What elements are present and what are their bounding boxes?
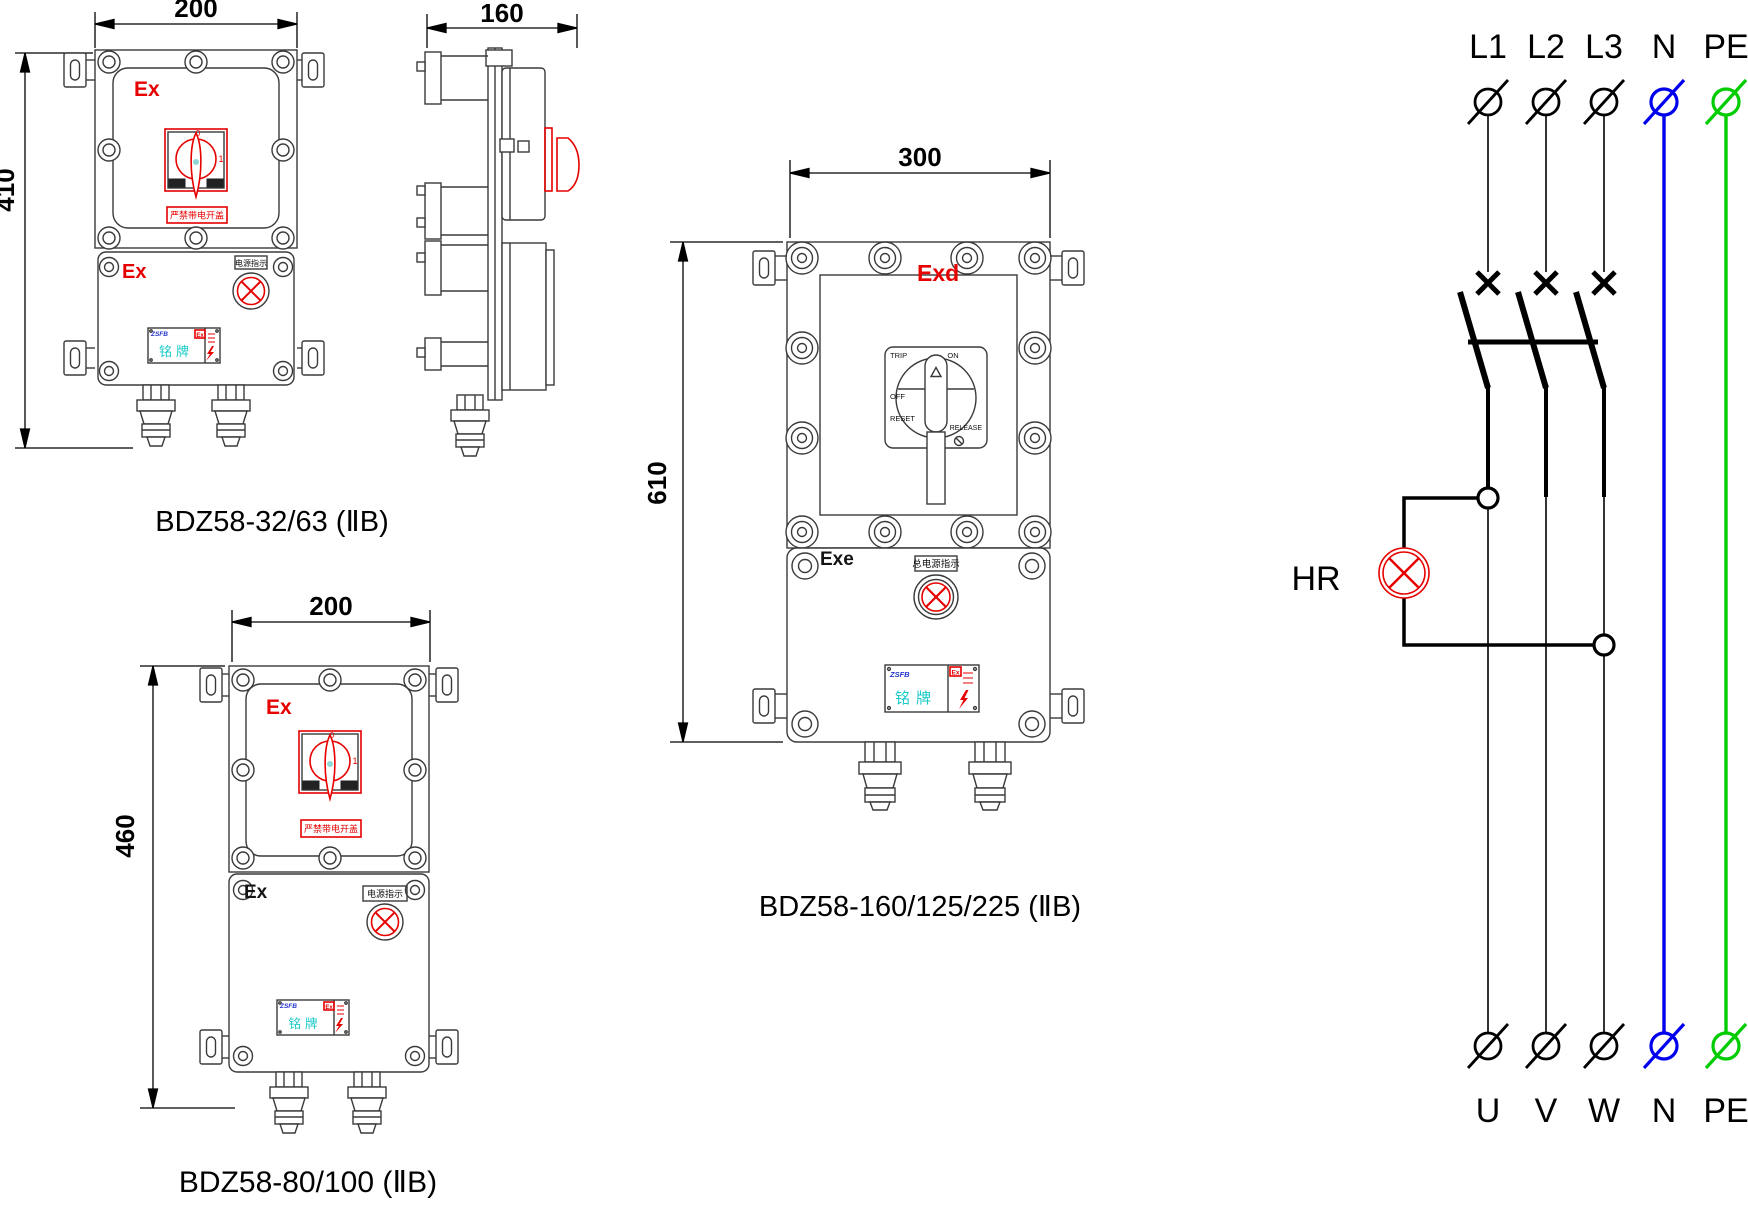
box3-ex-marking-base: Ex bbox=[244, 882, 268, 903]
box2-nameplate-ex: Ex bbox=[952, 670, 960, 677]
box1-cable-gland-right bbox=[212, 385, 250, 446]
box1-side-view: 160 bbox=[417, 0, 579, 456]
box2-indicator-lamp bbox=[914, 575, 958, 619]
box1-switch-pos-1: 1 bbox=[218, 154, 223, 164]
side-mounting-brackets bbox=[417, 52, 488, 370]
breaker-x-contacts bbox=[1477, 272, 1615, 294]
lamp-tap-node-l1 bbox=[1478, 488, 1498, 508]
box3-warning-label-text: 严禁带电开盖 bbox=[304, 823, 358, 834]
box1-switch-pos-0: 0 bbox=[196, 129, 201, 138]
box1-ex-marking-base: Ex bbox=[122, 261, 146, 283]
side-width-dim-text: 160 bbox=[480, 0, 523, 28]
box3-height-dim-text: 460 bbox=[110, 814, 140, 857]
box2-switch-on-label: ON bbox=[947, 351, 958, 360]
box3-nameplate-title: 铭牌 bbox=[288, 1016, 321, 1031]
box2-caption: BDZ58-160/125/225 (ⅡB) bbox=[759, 891, 1081, 923]
box3-front-view: 200 460 Ex 0 1 严禁带电开盖 Ex 电源指示 ZSFB 铭牌 Ex bbox=[110, 591, 458, 1199]
box2-switch-reset-label: RESET bbox=[890, 414, 915, 423]
box2-front-view: 300 610 Exd TRIP ON OFF RESET RELEAS bbox=[642, 142, 1084, 923]
box3-cable-gland-left bbox=[270, 1072, 308, 1133]
box3-nameplate-brand: ZSFB bbox=[279, 1003, 297, 1010]
box2-nameplate-brand: ZSFB bbox=[889, 670, 910, 679]
box3-base-section bbox=[229, 874, 429, 1072]
box3-switch-pos-0: 0 bbox=[330, 731, 335, 740]
side-switch-handle bbox=[545, 128, 579, 191]
label-l1: L1 bbox=[1469, 28, 1507, 66]
box3-indicator-label-text: 电源指示 bbox=[367, 888, 403, 899]
label-pe-bottom: PE bbox=[1703, 1092, 1748, 1130]
side-cable-gland bbox=[451, 395, 489, 456]
box2-cable-gland-right bbox=[969, 742, 1011, 810]
drawing-canvas: 200 410 Ex 0 1 严禁带电开盖 Ex 电源指示 ZSFB 铭牌 Ex bbox=[0, 0, 1748, 1206]
wiring-diagram: L1 L2 L3 N PE bbox=[1291, 28, 1748, 1130]
box2-indicator-label-text: 总电源指示 bbox=[912, 558, 960, 570]
box2-height-dim-text: 610 bbox=[642, 461, 672, 504]
box2-base-section bbox=[787, 548, 1050, 742]
box1-nameplate-ex: Ex bbox=[196, 333, 204, 339]
side-base-depth bbox=[502, 243, 546, 390]
box2-switch-release-label: RELEASE bbox=[950, 425, 983, 432]
phase-input-lines bbox=[1488, 115, 1604, 272]
box1-warning-label-text: 严禁带电开盖 bbox=[170, 210, 224, 221]
box2-exe-marking: Exe bbox=[820, 549, 854, 570]
hr-lamp-label: HR bbox=[1291, 560, 1340, 598]
box1-indicator-label-text: 电源指示 bbox=[235, 258, 267, 268]
box2-exd-marking: Exd bbox=[917, 260, 959, 286]
hr-indicator-lamp bbox=[1379, 548, 1429, 598]
box1-indicator-lamp bbox=[233, 273, 269, 309]
box1-caption: BDZ58-32/63 (ⅡB) bbox=[155, 506, 388, 538]
box3-ex-marking-cover: Ex bbox=[266, 696, 292, 719]
label-pe-top: PE bbox=[1703, 28, 1748, 66]
box2-switch-trip-label: TRIP bbox=[890, 351, 907, 360]
box1-nameplate-title: 铭牌 bbox=[159, 344, 193, 359]
phase-output-lines bbox=[1488, 497, 1604, 1033]
box1-width-dim-text: 200 bbox=[174, 0, 217, 23]
lamp-branch-wires bbox=[1404, 498, 1594, 645]
label-l2: L2 bbox=[1527, 28, 1565, 66]
box1-ex-marking-cover: Ex bbox=[134, 78, 160, 101]
box2-width-dim-text: 300 bbox=[898, 142, 941, 172]
label-l3: L3 bbox=[1585, 28, 1623, 66]
box3-cable-gland-right bbox=[348, 1072, 386, 1133]
box2-cable-gland-left bbox=[859, 742, 901, 810]
box3-nameplate-ex: Ex bbox=[325, 1005, 333, 1011]
box3-switch-pos-1: 1 bbox=[352, 756, 357, 766]
box1-front-view: 200 410 Ex 0 1 严禁带电开盖 Ex 电源指示 ZSFB 铭牌 Ex bbox=[0, 0, 389, 538]
lamp-tap-node-l3 bbox=[1594, 635, 1614, 655]
box1-height-dim-text: 410 bbox=[0, 168, 20, 211]
box2-switch-off-label: OFF bbox=[890, 392, 905, 401]
box2-height-dimension bbox=[670, 242, 783, 742]
box3-width-dim-text: 200 bbox=[309, 591, 352, 621]
box1-nameplate-brand: ZSFB bbox=[150, 331, 168, 338]
label-n-bottom: N bbox=[1652, 1092, 1677, 1130]
label-n-top: N bbox=[1652, 28, 1677, 66]
technical-drawing-page: 200 410 Ex 0 1 严禁带电开盖 Ex 电源指示 ZSFB 铭牌 Ex bbox=[0, 0, 1748, 1206]
label-u: U bbox=[1476, 1092, 1501, 1130]
box1-cable-gland-left bbox=[137, 385, 175, 446]
box3-indicator-lamp bbox=[367, 904, 403, 940]
box2-nameplate-title: 铭牌 bbox=[895, 690, 937, 707]
label-v: V bbox=[1535, 1092, 1558, 1130]
breaker-output-stubs bbox=[1488, 386, 1604, 497]
label-w: W bbox=[1588, 1092, 1620, 1130]
box3-caption: BDZ58-80/100 (ⅡB) bbox=[179, 1166, 437, 1199]
